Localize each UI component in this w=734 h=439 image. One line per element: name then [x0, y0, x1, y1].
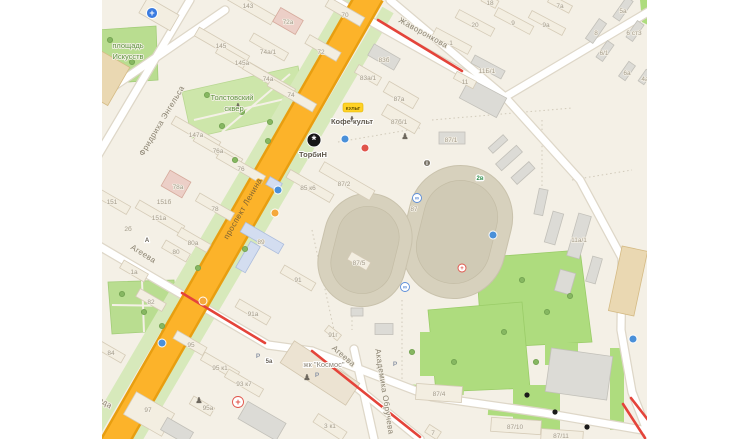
park-label-ploshchad-iskusstv-2: Искусств: [112, 52, 143, 61]
building-label: 5а: [619, 8, 627, 15]
tree-icon: [119, 291, 124, 296]
svg-text:+: +: [235, 397, 240, 407]
svg-text:P: P: [393, 361, 398, 368]
svg-text:∞: ∞: [403, 285, 407, 291]
tree-icon: [232, 157, 237, 162]
tree-icon: [567, 293, 572, 298]
gate-badge-2v: 2в: [476, 176, 483, 182]
svg-text:♟: ♟: [303, 373, 310, 382]
building-label: 80: [172, 249, 180, 256]
building-label: 85 к6: [300, 185, 316, 192]
building-label: 87/4: [433, 391, 446, 398]
map-canvas[interactable]: КУЛЬТ ++*♟♟♟♟♟PPP∞∞i+ Фридриха Энгельсап…: [102, 0, 647, 439]
building-label: 145а: [235, 60, 250, 67]
stop-badge-a: А: [145, 238, 150, 244]
building-label: 9: [511, 20, 515, 27]
transit-stop-icon: [158, 339, 166, 347]
building-label: 6/1: [599, 50, 608, 57]
building-label: 95: [187, 342, 195, 349]
building-label: 83а/1: [360, 75, 377, 82]
building-label: 11а/1: [571, 237, 587, 244]
building-label: 91: [294, 277, 302, 284]
building-label: 70: [341, 12, 349, 19]
bike-icon: ∞: [413, 194, 422, 203]
monument-icon: ♟: [303, 373, 310, 382]
entrance-number-icon: [584, 424, 589, 429]
tree-icon: [159, 323, 164, 328]
poi-label-torbin[interactable]: ТорбиН: [299, 150, 327, 159]
building-label: 1а: [130, 269, 138, 276]
building-label: 72а: [283, 19, 294, 26]
building-label: 74: [287, 92, 295, 99]
tree-icon: [265, 138, 270, 143]
svg-text:+: +: [149, 8, 154, 18]
building-label: 87/5: [353, 260, 366, 267]
building-label: 11Б/1: [479, 68, 496, 75]
tree-icon: [501, 329, 506, 334]
building-label: 147а: [189, 132, 204, 139]
bike-icon: ∞: [401, 283, 410, 292]
torbin-logo-icon[interactable]: *: [307, 133, 321, 147]
svg-text:♟: ♟: [195, 396, 202, 405]
tree-icon: [242, 246, 247, 251]
building-label: 95а: [203, 405, 214, 412]
svg-text:P: P: [315, 372, 320, 379]
building-label: 87/11: [553, 433, 569, 439]
tree-icon: [409, 349, 414, 354]
tree-icon: [219, 123, 224, 128]
shop-poi-icon: [271, 209, 279, 217]
building-label: 87/10: [507, 424, 524, 431]
building-label: 1: [449, 40, 453, 47]
building-label: 84: [107, 350, 115, 357]
kofe-kult-badge[interactable]: КУЛЬТ: [343, 103, 363, 112]
svg-text:∞: ∞: [415, 196, 419, 202]
building-label: 87/2: [338, 181, 351, 188]
first-aid-icon: +: [458, 264, 466, 272]
cafe-poi-icon: [361, 144, 369, 152]
svg-text:♟: ♟: [401, 132, 408, 141]
park-label-tolstovsky-skver-2: сквер: [224, 104, 243, 113]
monument-icon: ♟: [401, 132, 408, 141]
tree-icon: [141, 309, 146, 314]
building-label: 143: [243, 3, 254, 10]
park-label-tolstovsky-skver: Толстовский: [211, 93, 254, 102]
poi-label-zhk-kosmos[interactable]: жк "Космос": [303, 360, 344, 369]
stop-badge-5a: 5а: [266, 359, 273, 365]
building-label: 91а: [248, 311, 259, 318]
building-label: 91г: [328, 332, 338, 339]
building-label: 76: [237, 166, 245, 173]
building-label: 151а: [152, 215, 167, 222]
park-label-ploshchad-iskusstv: площадь: [112, 41, 143, 50]
tree-icon: [451, 359, 456, 364]
shop-poi-icon: [199, 297, 207, 305]
building-label: 8: [594, 30, 598, 37]
kofe-kult-badge-label: КУЛЬТ: [346, 106, 361, 111]
building-label: 87а: [394, 96, 405, 103]
building-label: 87: [410, 206, 418, 213]
building-label: 78: [211, 206, 219, 213]
poi-label-kofe-kult[interactable]: Кофе культ: [331, 117, 373, 126]
building-label: 7а: [556, 3, 564, 10]
parking-icon: P: [393, 361, 398, 368]
building-label: 72: [317, 49, 325, 56]
building-label: 97: [144, 407, 152, 414]
building-label: 87б/1: [391, 118, 408, 126]
building-label: 151: [107, 199, 118, 206]
building-label: 78а: [173, 184, 184, 191]
tree-icon: [533, 359, 538, 364]
building-label: 74а/1: [260, 49, 277, 56]
monument-icon: ♟: [195, 396, 202, 405]
tree-icon: [544, 309, 549, 314]
parking-icon: P: [256, 353, 261, 360]
medical-cross-icon: +: [147, 8, 158, 19]
svg-text:P: P: [256, 353, 261, 360]
info-icon: i: [424, 160, 431, 168]
building-label: 74а: [263, 76, 274, 83]
building-label: 89: [257, 239, 265, 246]
entrance-number-icon: [524, 392, 529, 397]
tree-icon: [267, 119, 272, 124]
building-label: 18: [486, 0, 494, 7]
building-label: 95 к1: [212, 365, 228, 372]
svg-text:+: +: [460, 266, 464, 272]
transit-stop-icon: [341, 135, 349, 143]
ticket-poi-icon: [489, 231, 497, 239]
building-label: 4а: [641, 76, 647, 83]
building-label: 76а: [213, 148, 224, 155]
building-label: 83б: [379, 56, 390, 64]
building-label: 87/1: [445, 137, 458, 144]
building-label: 2б: [124, 225, 132, 233]
transit-stop-icon: [629, 335, 637, 343]
building-label: 11: [462, 79, 469, 86]
building-label: 20: [471, 22, 479, 29]
building-label: 145: [216, 43, 227, 50]
building-label: 80а: [188, 240, 199, 247]
building-label: 6а: [623, 70, 631, 77]
entrance-number-icon: [552, 409, 557, 414]
building-label: 151б: [157, 198, 172, 206]
tree-icon: [195, 265, 200, 270]
tree-icon: [204, 92, 209, 97]
parking-icon: P: [315, 372, 320, 379]
building-label: 7: [431, 430, 435, 437]
transit-stop-icon: [274, 186, 282, 194]
building-label: 82: [147, 299, 155, 306]
building-label: 3 к1: [324, 423, 336, 430]
building-label: 6 ст3: [626, 30, 642, 37]
building-label: 9а: [542, 22, 550, 29]
tree-icon: [519, 277, 524, 282]
svg-text:*: *: [312, 133, 317, 147]
building-label: 93 к7: [236, 381, 252, 388]
pharmacy-cross-icon: +: [233, 397, 244, 408]
